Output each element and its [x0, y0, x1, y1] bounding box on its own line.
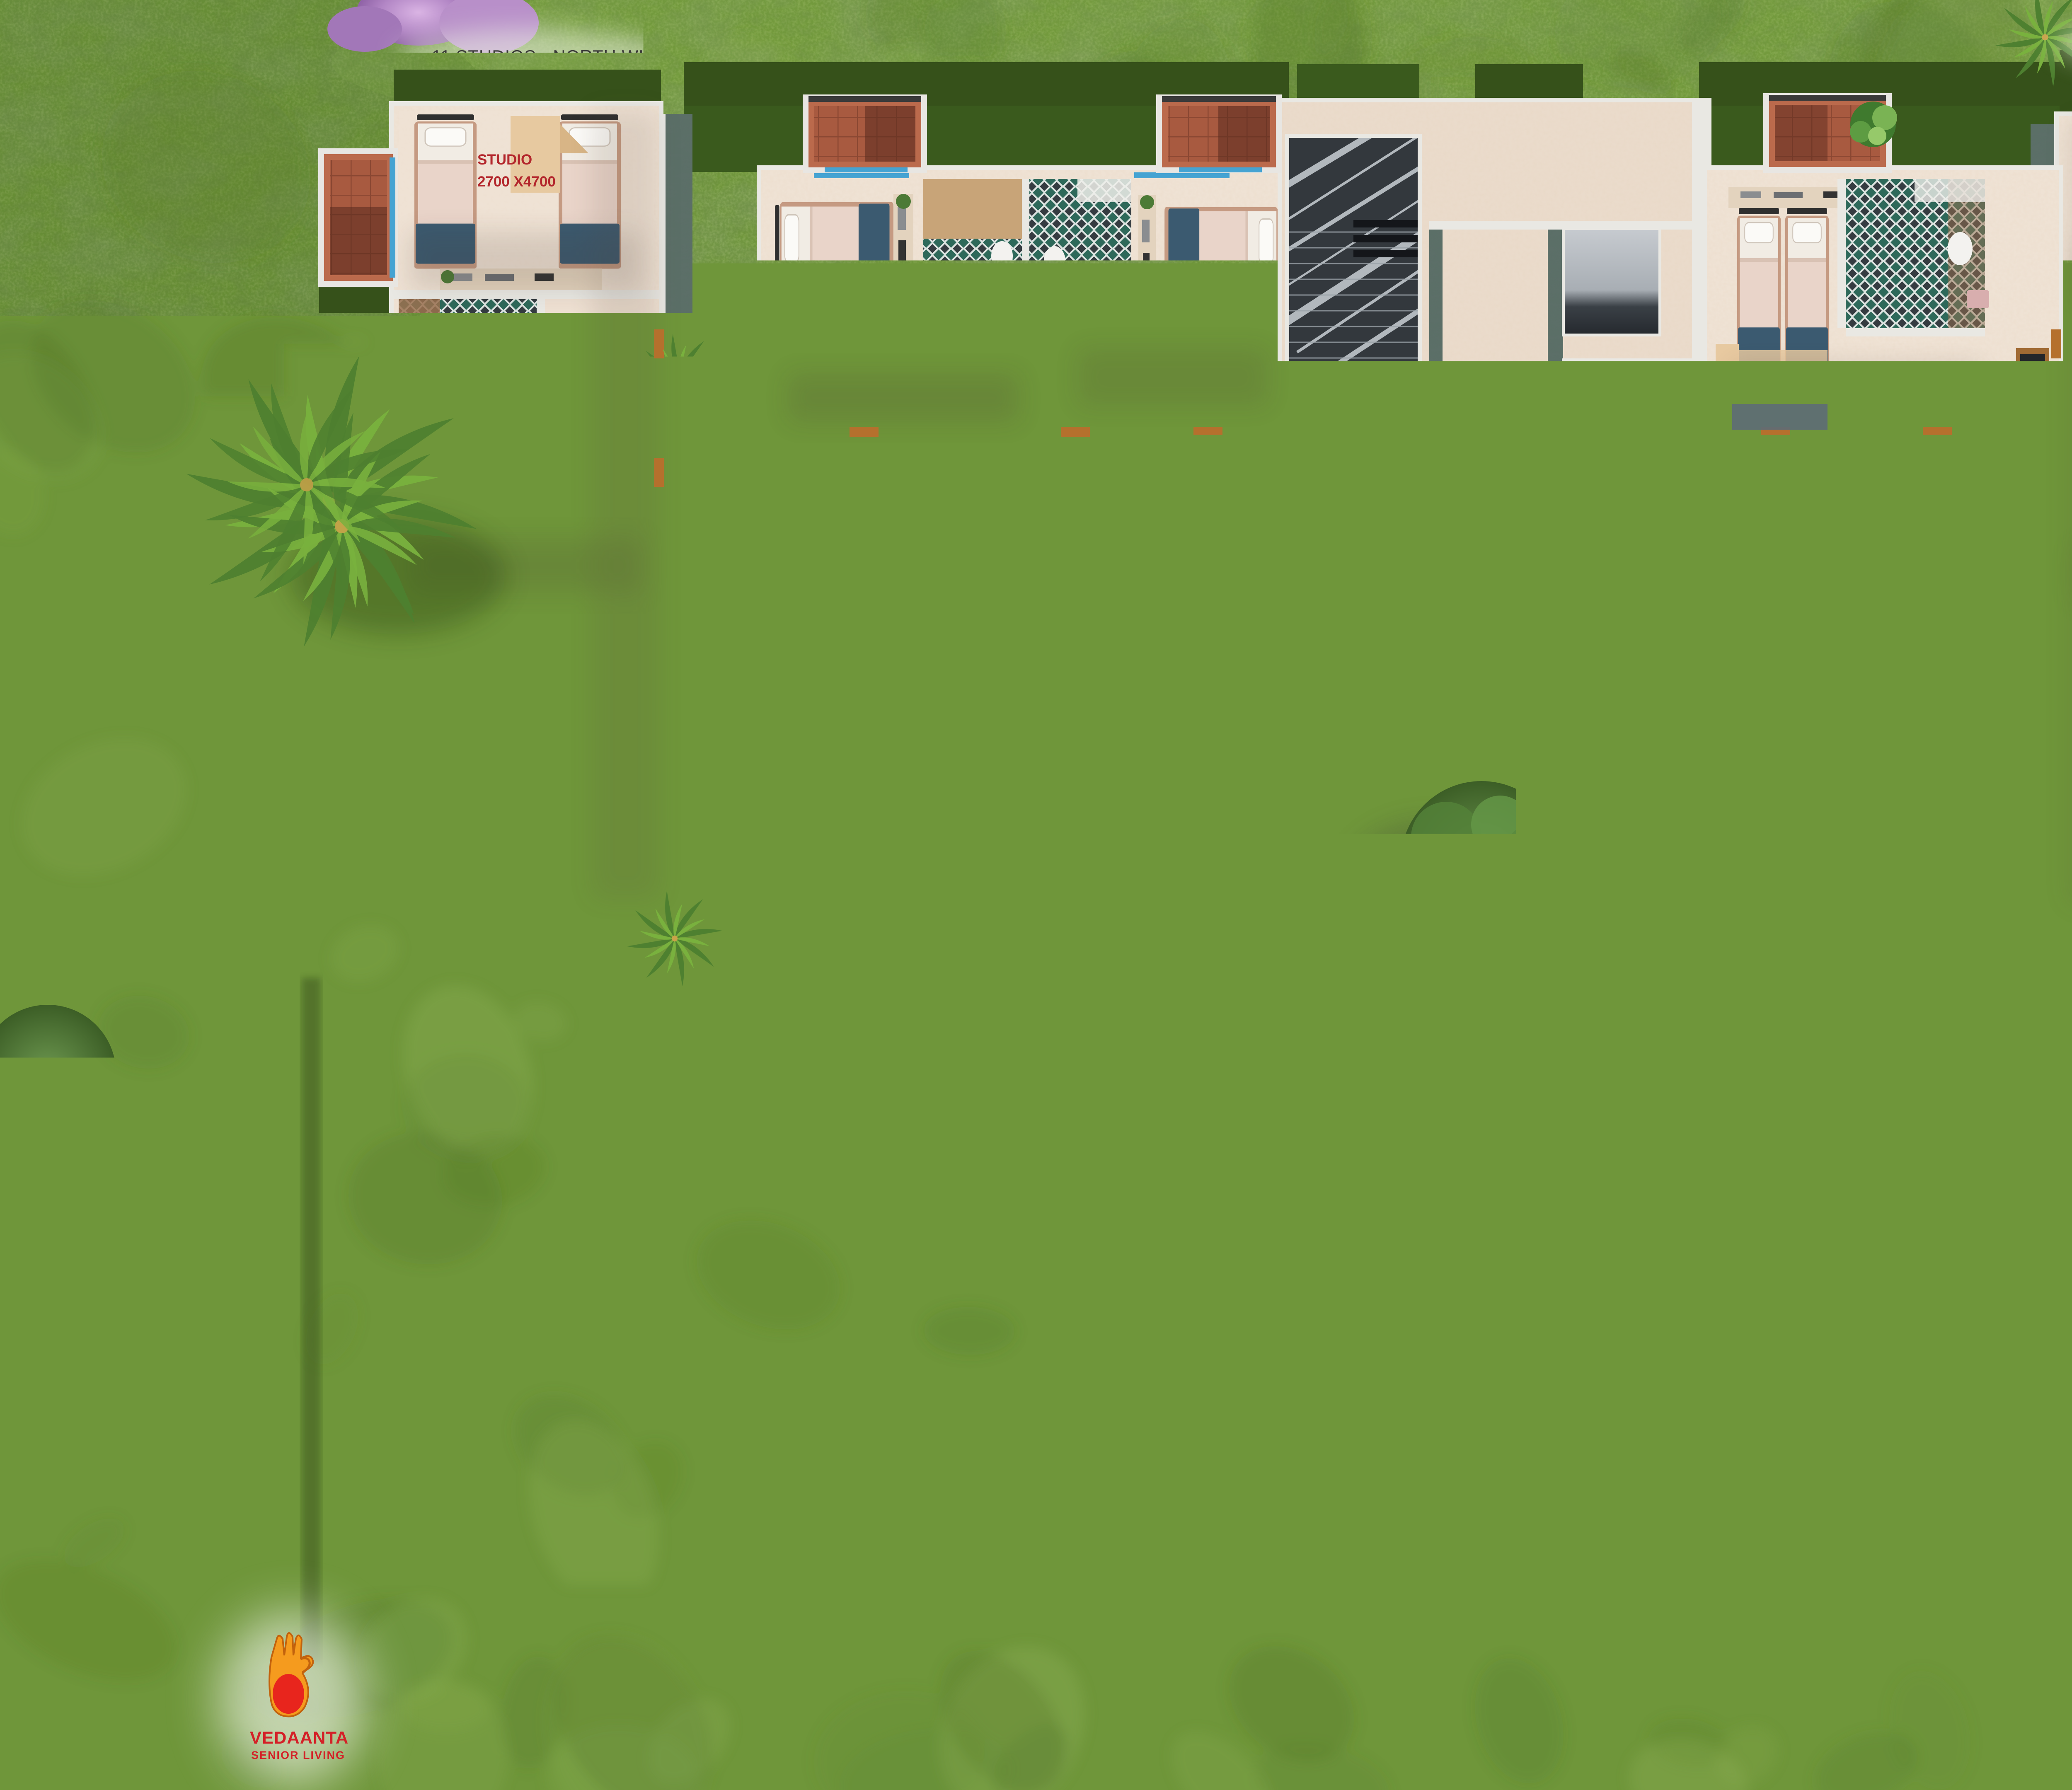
- svg-text:2000 X1400: 2000 X1400: [569, 304, 640, 319]
- svg-text:LOUNGE: LOUNGE: [904, 348, 961, 363]
- svg-text:1800 X 2400: 1800 X 2400: [1040, 228, 1116, 243]
- svg-text:8'10.25" X 15'5": 8'10.25" X 15'5": [1175, 280, 1282, 296]
- svg-text:STUDIO: STUDIO: [1175, 236, 1230, 252]
- svg-text:we dissolve boundaries: we dissolve boundaries: [94, 1697, 190, 1706]
- svg-text:6'6.75" X 4'7": 6'6.75" X 4'7": [569, 325, 651, 340]
- svg-text:2000 X1400: 2000 X1400: [904, 370, 976, 385]
- svg-text:WARDROBE: WARDROBE: [787, 312, 866, 327]
- svg-text:BREAK OUT AREA: BREAK OUT AREA: [855, 519, 1028, 541]
- svg-text:STUDIO: STUDIO: [1726, 348, 1781, 365]
- svg-text:2.4 M/ 7'10" W: 2.4 M/ 7'10" W: [1329, 513, 1459, 535]
- svg-text:BATH: BATH: [429, 813, 465, 827]
- svg-text:VEDAANTA: VEDAANTA: [250, 1728, 349, 1747]
- svg-text:2700 X4700: 2700 X4700: [474, 688, 552, 704]
- svg-text:2000 X1400: 2000 X1400: [1073, 364, 1145, 379]
- svg-text:STUDIO: STUDIO: [477, 152, 532, 168]
- svg-text:11.60 x 16.15: 11.60 x 16.15: [1229, 894, 1348, 916]
- svg-text:5'10.75" X7'10.5": 5'10.75" X7'10.5": [429, 856, 534, 871]
- svg-text:1800 X 2400: 1800 X 2400: [433, 437, 508, 452]
- svg-text:16'1" X 11'0": 16'1" X 11'0": [855, 573, 966, 595]
- svg-text:6'6.75" X 4'7": 6'6.75" X 4'7": [566, 823, 649, 838]
- svg-text:2700 X4700: 2700 X4700: [499, 580, 578, 596]
- svg-text:2700 X4700: 2700 X4700: [1175, 258, 1254, 274]
- svg-text:4.90x3.35: 4.90x3.35: [855, 546, 942, 568]
- svg-text:BATH: BATH: [929, 197, 966, 212]
- svg-text:2000 X1400: 2000 X1400: [566, 802, 638, 817]
- svg-text:2000 X1400: 2000 X1400: [1898, 382, 1970, 397]
- svg-text:BATH: BATH: [1040, 207, 1076, 222]
- svg-text:LIFT: LIFT: [1582, 281, 1614, 298]
- svg-text:8'10.25" X 15'5": 8'10.25" X 15'5": [1726, 392, 1833, 409]
- svg-text:SENIOR LIVING: SENIOR LIVING: [251, 1749, 345, 1761]
- svg-text:LOUNGE: LOUNGE: [569, 282, 625, 297]
- svg-text:5'10.75" X7'10.5": 5'10.75" X7'10.5": [433, 339, 538, 354]
- svg-text:5'10.75" X7'10.5": 5'10.75" X7'10.5": [433, 459, 538, 474]
- svg-text:LOUNGE: LOUNGE: [571, 435, 627, 450]
- svg-text:1800 X 2400: 1800 X 2400: [1859, 225, 1934, 240]
- svg-text:38'0.5" x 52'11.75": 38'0.5" x 52'11.75": [1229, 924, 1392, 946]
- svg-text:LIFT: LIFT: [1590, 400, 1622, 417]
- svg-text:4.90x3.35: 4.90x3.35: [1762, 537, 1850, 559]
- svg-text:8'10.25" X 15'5": 8'10.25" X 15'5": [474, 710, 581, 726]
- svg-text:6'6.75" X 4'7": 6'6.75" X 4'7": [1898, 403, 1981, 418]
- svg-text:5'10.75" X7'10.5": 5'10.75" X7'10.5": [1859, 247, 1964, 261]
- svg-text:1800 X 2400: 1800 X 2400: [433, 317, 508, 332]
- svg-text:2000 X1400: 2000 X1400: [571, 457, 642, 472]
- svg-text:COURTYARD: COURTYARD: [1229, 864, 1353, 886]
- svg-text:8'10.25" X 15'5": 8'10.25" X 15'5": [477, 196, 584, 212]
- svg-text:1800 X 2400: 1800 X 2400: [929, 219, 1005, 234]
- svg-text:8'10.25" X 15'5": 8'10.25" X 15'5": [499, 602, 606, 618]
- svg-text:6'6.75" X 4'7": 6'6.75" X 4'7": [904, 392, 987, 406]
- svg-text:2700 X4700: 2700 X4700: [807, 270, 885, 286]
- svg-text:CORRIDOR: CORRIDOR: [1329, 480, 1438, 502]
- svg-text:BATH: BATH: [433, 416, 469, 431]
- svg-text:together: together: [94, 1670, 167, 1693]
- svg-text:11 STUDIOS - NORTH WING: 11 STUDIOS - NORTH WING: [432, 46, 671, 66]
- svg-text:LOUNGE: LOUNGE: [1073, 343, 1130, 358]
- svg-text:2700 X4700: 2700 X4700: [477, 174, 556, 190]
- svg-text:BATH: BATH: [1859, 203, 1895, 218]
- svg-text:8'10.25" X 15'5": 8'10.25" X 15'5": [807, 292, 914, 308]
- svg-text:LOUNGE: LOUNGE: [566, 780, 623, 795]
- svg-text:STRETCHER: STRETCHER: [1590, 373, 1684, 389]
- svg-text:LOUNGE: LOUNGE: [1898, 360, 1955, 375]
- svg-text:BREAK OUT AREA: BREAK OUT AREA: [1762, 510, 1936, 532]
- svg-text:5'10.75" X7'10.5": 5'10.75" X7'10.5": [929, 240, 1035, 255]
- svg-text:5'10.75" X7'10.5": 5'10.75" X7'10.5": [1040, 250, 1145, 265]
- svg-text:2700 X4700: 2700 X4700: [1726, 370, 1804, 387]
- svg-text:STUDIO: STUDIO: [474, 666, 528, 682]
- svg-text:1800 X 2400: 1800 X 2400: [429, 834, 504, 849]
- svg-text:8 PAS.: 8 PAS.: [1582, 255, 1629, 272]
- svg-text:STUDIO: STUDIO: [807, 248, 862, 264]
- svg-text:16'1" X 11'0": 16'1" X 11'0": [1762, 564, 1874, 585]
- svg-text:STUDIO: STUDIO: [499, 558, 554, 574]
- svg-text:WARDROBE: WARDROBE: [1197, 312, 1276, 327]
- svg-text:7'10.5"X13'11": 7'10.5"X13'11": [1450, 323, 1548, 340]
- svg-text:6'6.75" X 4'7": 6'6.75" X 4'7": [571, 479, 654, 493]
- svg-text:BATH: BATH: [433, 296, 469, 311]
- svg-text:2.40x4.25: 2.40x4.25: [1450, 296, 1517, 313]
- svg-text:6'6.75" X 4'7": 6'6.75" X 4'7": [1073, 386, 1156, 401]
